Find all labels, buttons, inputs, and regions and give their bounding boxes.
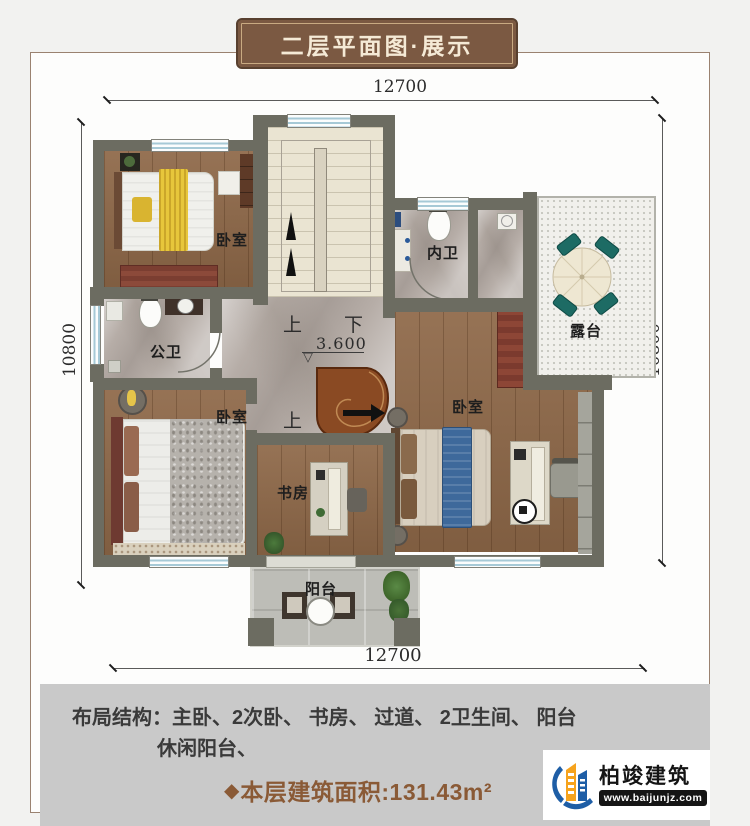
wall xyxy=(93,378,104,567)
floorplan-page: { "banner": { "title": "二层平面图·展示" }, "di… xyxy=(0,0,750,826)
wall xyxy=(383,298,535,312)
balcony-table xyxy=(306,597,335,626)
pillow xyxy=(401,434,417,474)
toilet xyxy=(427,208,451,241)
title-banner: 二层平面图·展示 xyxy=(236,18,518,69)
page-title: 二层平面图·展示 xyxy=(281,27,474,61)
elevation-marker-icon: ▽ xyxy=(303,350,313,365)
room-label-master-bedroom: 卧室 xyxy=(452,396,484,417)
speaker-core xyxy=(519,506,527,514)
desk-pad xyxy=(328,468,341,530)
bed-runner-yellow xyxy=(159,169,188,251)
nightstand xyxy=(218,171,240,195)
company-name: 柏竣建筑 xyxy=(599,760,709,790)
wall xyxy=(253,127,268,305)
layout-items: 主卧、2次卧、 书房、 过道、 2卫生间、 阳台 xyxy=(172,707,576,729)
monitor xyxy=(316,470,325,480)
stair-up-label: 上 xyxy=(283,310,302,337)
layout-line-1: 布局结构：主卧、2次卧、 书房、 过道、 2卫生间、 阳台 xyxy=(72,701,672,730)
room-label-study: 书房 xyxy=(277,482,309,503)
pillow xyxy=(401,479,417,519)
wall xyxy=(246,430,257,557)
dim-label-top: 12700 xyxy=(355,77,445,97)
dim-line-top xyxy=(107,100,655,101)
floor-drain xyxy=(108,360,121,373)
window xyxy=(288,115,350,127)
bed-headboard xyxy=(114,172,122,249)
pillow xyxy=(132,197,152,222)
balcony-pillar xyxy=(394,618,420,646)
wall xyxy=(93,378,257,390)
wall xyxy=(210,368,222,390)
dim-line-bottom xyxy=(113,668,645,669)
bedside-lamp xyxy=(387,407,408,428)
layout-line-2: 休闲阳台、 xyxy=(157,732,457,761)
wall xyxy=(90,287,104,306)
monitor xyxy=(514,449,526,460)
wall xyxy=(592,385,604,562)
plant xyxy=(383,571,410,602)
bed-runner-blue xyxy=(442,427,472,528)
area-line: ◆ 本层建筑面积:131.43m² xyxy=(224,773,544,807)
closet xyxy=(578,392,592,554)
layout-label: 布局结构： xyxy=(72,707,172,729)
balcony-door-threshold xyxy=(267,557,355,567)
lamp-glow xyxy=(127,390,136,406)
wall xyxy=(468,210,478,300)
pillow xyxy=(124,426,139,476)
company-website: www.baijunjz.com xyxy=(599,790,707,806)
wall xyxy=(523,192,537,390)
balcony-pillar xyxy=(248,618,274,646)
window xyxy=(418,198,468,210)
chair-cushion xyxy=(335,597,350,613)
area-text: 本层建筑面积:131.43m² xyxy=(240,773,492,807)
spiral-stair xyxy=(313,366,389,438)
pillow xyxy=(124,482,139,532)
room-label-terrace: 露台 xyxy=(570,320,602,341)
logo-box: 柏竣建筑 www.baijunjz.com xyxy=(543,750,710,820)
chair xyxy=(347,488,367,512)
room-label-balcony: 阳台 xyxy=(305,578,337,599)
wall xyxy=(246,390,257,404)
spiral-up-label: 上 xyxy=(283,406,302,433)
wall xyxy=(383,115,395,318)
wall xyxy=(210,287,222,333)
room-label-public-bath: 公卫 xyxy=(150,341,182,362)
stair-direction-arrow xyxy=(286,248,296,276)
dim-line-left xyxy=(81,122,82,585)
stair-direction-arrow xyxy=(286,212,296,240)
bed-blanket xyxy=(170,419,243,545)
chair-cushion xyxy=(287,597,302,613)
room-label-bedroom-upper-left: 卧室 xyxy=(216,229,248,250)
toilet xyxy=(139,297,162,328)
sink-bowl xyxy=(501,215,513,227)
window xyxy=(91,306,100,364)
company-logo-icon xyxy=(549,757,595,813)
wall xyxy=(93,287,268,299)
stair-rail xyxy=(314,148,327,292)
room-label-inner-bath: 内卫 xyxy=(427,242,459,263)
shower-tray xyxy=(106,301,123,321)
stair-down-label: 下 xyxy=(344,310,363,337)
plant-pot xyxy=(124,156,135,167)
desk-leaf xyxy=(316,508,325,517)
room-label-bedroom-lower-left: 卧室 xyxy=(216,406,248,427)
dim-label-left: 10800 xyxy=(60,322,80,378)
rug xyxy=(120,265,218,288)
wall xyxy=(246,433,395,445)
window xyxy=(150,557,228,567)
wall xyxy=(383,443,395,557)
layout-items-line2: 休闲阳台、 xyxy=(157,738,257,760)
faucet-dot xyxy=(405,238,410,243)
elevation-value: 3.600 xyxy=(316,334,367,353)
bed-headboard xyxy=(111,417,123,545)
window xyxy=(152,140,228,151)
wall xyxy=(93,140,104,297)
sink xyxy=(177,298,194,314)
door-arc xyxy=(408,258,454,302)
diamond-icon: ◆ xyxy=(224,778,239,803)
carpet xyxy=(113,543,245,555)
dim-label-bottom: 12700 xyxy=(348,645,438,666)
window xyxy=(455,557,540,567)
plant-pot xyxy=(264,532,284,554)
